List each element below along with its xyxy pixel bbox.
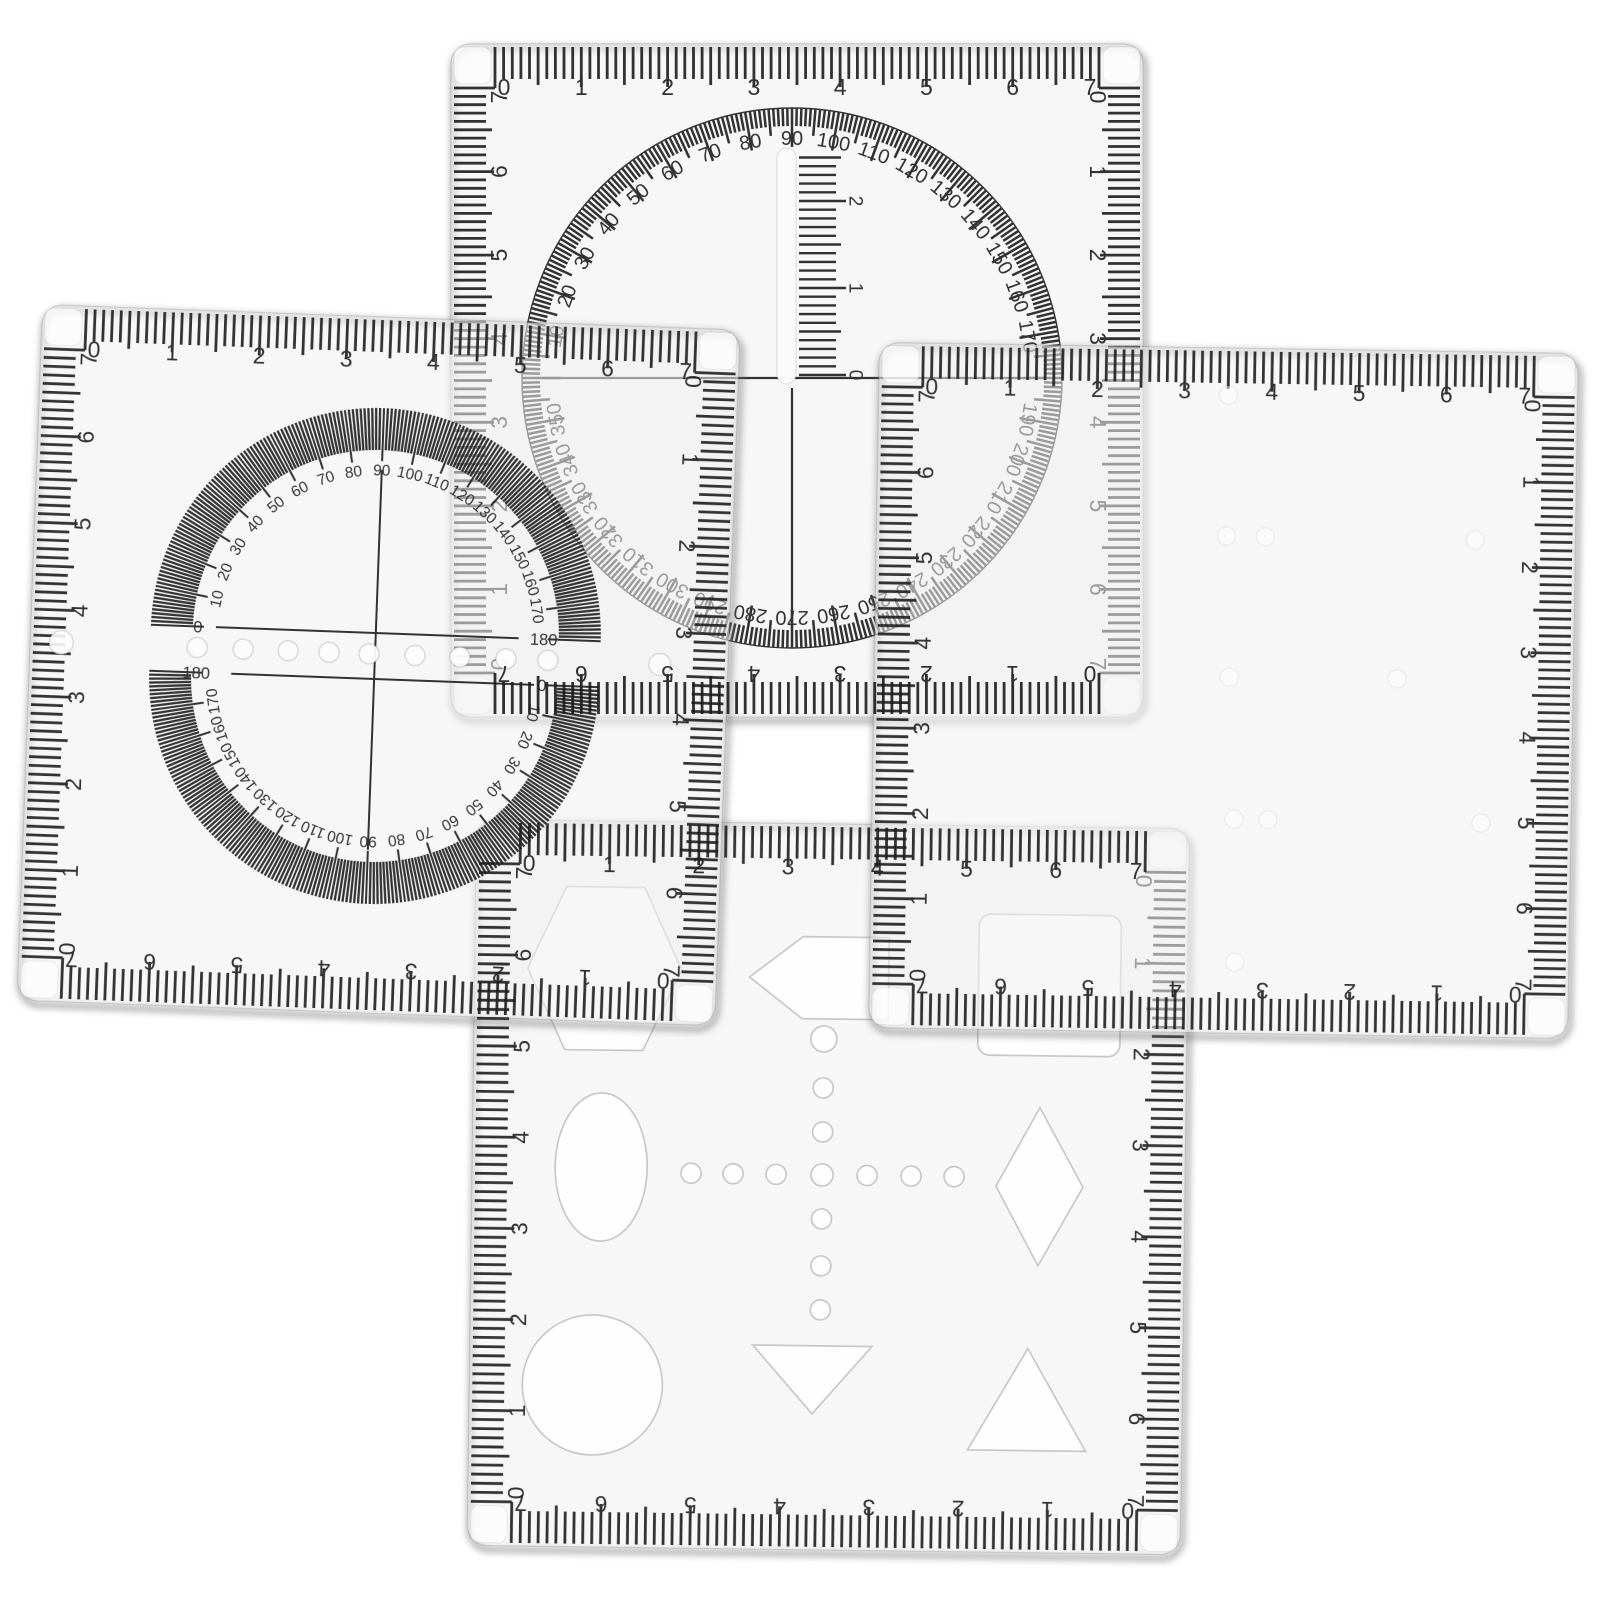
svg-text:4: 4 xyxy=(747,661,760,687)
svg-text:5: 5 xyxy=(960,856,973,882)
svg-text:6: 6 xyxy=(1006,74,1019,100)
svg-text:1: 1 xyxy=(677,452,703,466)
svg-text:3: 3 xyxy=(781,853,794,879)
svg-text:0: 0 xyxy=(54,942,80,956)
svg-text:1: 1 xyxy=(57,864,83,878)
svg-text:5: 5 xyxy=(1352,380,1365,406)
svg-text:4: 4 xyxy=(66,604,92,618)
svg-text:1: 1 xyxy=(165,339,179,365)
svg-text:2: 2 xyxy=(920,661,933,687)
svg-text:7: 7 xyxy=(498,661,511,687)
svg-text:2: 2 xyxy=(505,1313,531,1326)
svg-text:2: 2 xyxy=(60,777,86,791)
svg-text:2: 2 xyxy=(907,807,933,820)
svg-text:4: 4 xyxy=(1168,976,1181,1002)
svg-text:5: 5 xyxy=(486,249,512,262)
svg-text:1: 1 xyxy=(575,74,588,100)
svg-text:4: 4 xyxy=(834,74,847,100)
svg-text:2: 2 xyxy=(1091,376,1104,402)
svg-text:80: 80 xyxy=(386,830,406,849)
svg-text:7: 7 xyxy=(511,866,537,879)
svg-text:1: 1 xyxy=(1085,165,1111,178)
svg-text:1: 1 xyxy=(603,851,616,877)
svg-text:1: 1 xyxy=(578,965,592,991)
svg-text:170: 170 xyxy=(203,687,223,715)
svg-text:2: 2 xyxy=(1129,1048,1155,1061)
svg-text:5: 5 xyxy=(1513,817,1539,830)
svg-text:5: 5 xyxy=(509,1040,535,1053)
svg-text:180: 180 xyxy=(182,664,210,683)
svg-text:7: 7 xyxy=(913,390,939,403)
svg-text:2: 2 xyxy=(252,342,266,368)
svg-text:3: 3 xyxy=(1127,1139,1153,1152)
svg-text:90: 90 xyxy=(781,128,803,150)
svg-text:7: 7 xyxy=(75,352,101,366)
svg-text:0: 0 xyxy=(844,370,865,381)
svg-text:3: 3 xyxy=(1516,646,1542,659)
svg-text:6: 6 xyxy=(575,661,588,687)
svg-text:3: 3 xyxy=(862,1494,875,1520)
svg-text:4: 4 xyxy=(427,349,441,375)
svg-text:6: 6 xyxy=(994,973,1007,999)
svg-text:5: 5 xyxy=(1081,975,1094,1001)
svg-text:5: 5 xyxy=(911,551,937,564)
svg-text:4: 4 xyxy=(1126,1230,1152,1243)
svg-text:1: 1 xyxy=(1430,980,1443,1006)
svg-text:2: 2 xyxy=(952,1496,965,1522)
svg-text:6: 6 xyxy=(661,886,687,900)
svg-text:3: 3 xyxy=(1085,332,1111,345)
svg-text:2: 2 xyxy=(1085,249,1111,262)
svg-text:3: 3 xyxy=(339,346,353,372)
svg-text:2: 2 xyxy=(1517,561,1543,574)
svg-text:6: 6 xyxy=(1049,857,1062,883)
svg-text:3: 3 xyxy=(1256,978,1269,1004)
svg-text:1: 1 xyxy=(1518,476,1544,489)
svg-text:4: 4 xyxy=(773,1493,786,1519)
svg-text:4: 4 xyxy=(507,1131,533,1144)
svg-text:2: 2 xyxy=(674,539,700,553)
svg-text:0: 0 xyxy=(193,618,203,636)
svg-text:180: 180 xyxy=(530,630,558,649)
svg-text:3: 3 xyxy=(1178,377,1191,403)
svg-text:5: 5 xyxy=(684,1492,697,1518)
svg-text:6: 6 xyxy=(601,355,615,381)
svg-text:6: 6 xyxy=(486,165,512,178)
svg-text:0: 0 xyxy=(656,968,670,994)
svg-text:5: 5 xyxy=(1125,1321,1151,1334)
svg-text:1: 1 xyxy=(906,892,932,905)
svg-text:0: 0 xyxy=(680,375,706,389)
svg-text:170: 170 xyxy=(526,597,546,625)
svg-text:3: 3 xyxy=(404,958,418,984)
svg-text:1: 1 xyxy=(844,283,865,294)
svg-text:6: 6 xyxy=(594,1491,607,1517)
svg-text:3: 3 xyxy=(834,661,847,687)
svg-text:2: 2 xyxy=(491,961,505,987)
svg-text:0: 0 xyxy=(904,969,930,982)
svg-text:3: 3 xyxy=(671,626,697,640)
svg-text:7: 7 xyxy=(486,91,512,104)
svg-text:5: 5 xyxy=(69,517,95,531)
svg-text:0: 0 xyxy=(1509,982,1522,1008)
svg-text:0: 0 xyxy=(1519,399,1545,412)
svg-text:3: 3 xyxy=(63,691,89,705)
svg-text:0: 0 xyxy=(1084,661,1097,687)
svg-text:80: 80 xyxy=(738,130,764,156)
svg-text:1: 1 xyxy=(1006,661,1019,687)
svg-text:2: 2 xyxy=(1343,979,1356,1005)
svg-text:4: 4 xyxy=(668,713,694,727)
svg-text:5: 5 xyxy=(514,352,528,378)
svg-text:80: 80 xyxy=(344,463,364,482)
svg-text:0: 0 xyxy=(1121,1498,1134,1524)
svg-text:0: 0 xyxy=(1085,91,1111,104)
svg-text:4: 4 xyxy=(317,955,331,981)
svg-text:7: 7 xyxy=(1130,858,1143,884)
svg-text:3: 3 xyxy=(908,722,934,735)
svg-text:6: 6 xyxy=(912,466,938,479)
svg-text:1: 1 xyxy=(504,1404,530,1417)
svg-text:4: 4 xyxy=(1514,731,1540,744)
svg-text:6: 6 xyxy=(1124,1412,1150,1425)
svg-text:5: 5 xyxy=(661,661,674,687)
svg-text:4: 4 xyxy=(1265,379,1278,405)
svg-text:6: 6 xyxy=(510,949,536,962)
svg-text:4: 4 xyxy=(910,636,936,649)
svg-text:4: 4 xyxy=(871,855,884,881)
svg-text:2: 2 xyxy=(661,74,674,100)
svg-text:5: 5 xyxy=(230,952,244,978)
svg-text:1: 1 xyxy=(1003,375,1016,401)
svg-text:1: 1 xyxy=(1041,1497,1054,1523)
svg-text:6: 6 xyxy=(1440,381,1453,407)
svg-text:3: 3 xyxy=(506,1222,532,1235)
svg-text:3: 3 xyxy=(748,74,761,100)
svg-text:2: 2 xyxy=(692,852,705,878)
svg-text:5: 5 xyxy=(664,800,690,814)
svg-text:6: 6 xyxy=(73,430,99,444)
svg-text:2: 2 xyxy=(844,196,865,207)
svg-text:6: 6 xyxy=(1512,902,1538,915)
svg-text:5: 5 xyxy=(920,74,933,100)
svg-text:6: 6 xyxy=(143,949,157,975)
svg-text:0: 0 xyxy=(503,1486,529,1499)
